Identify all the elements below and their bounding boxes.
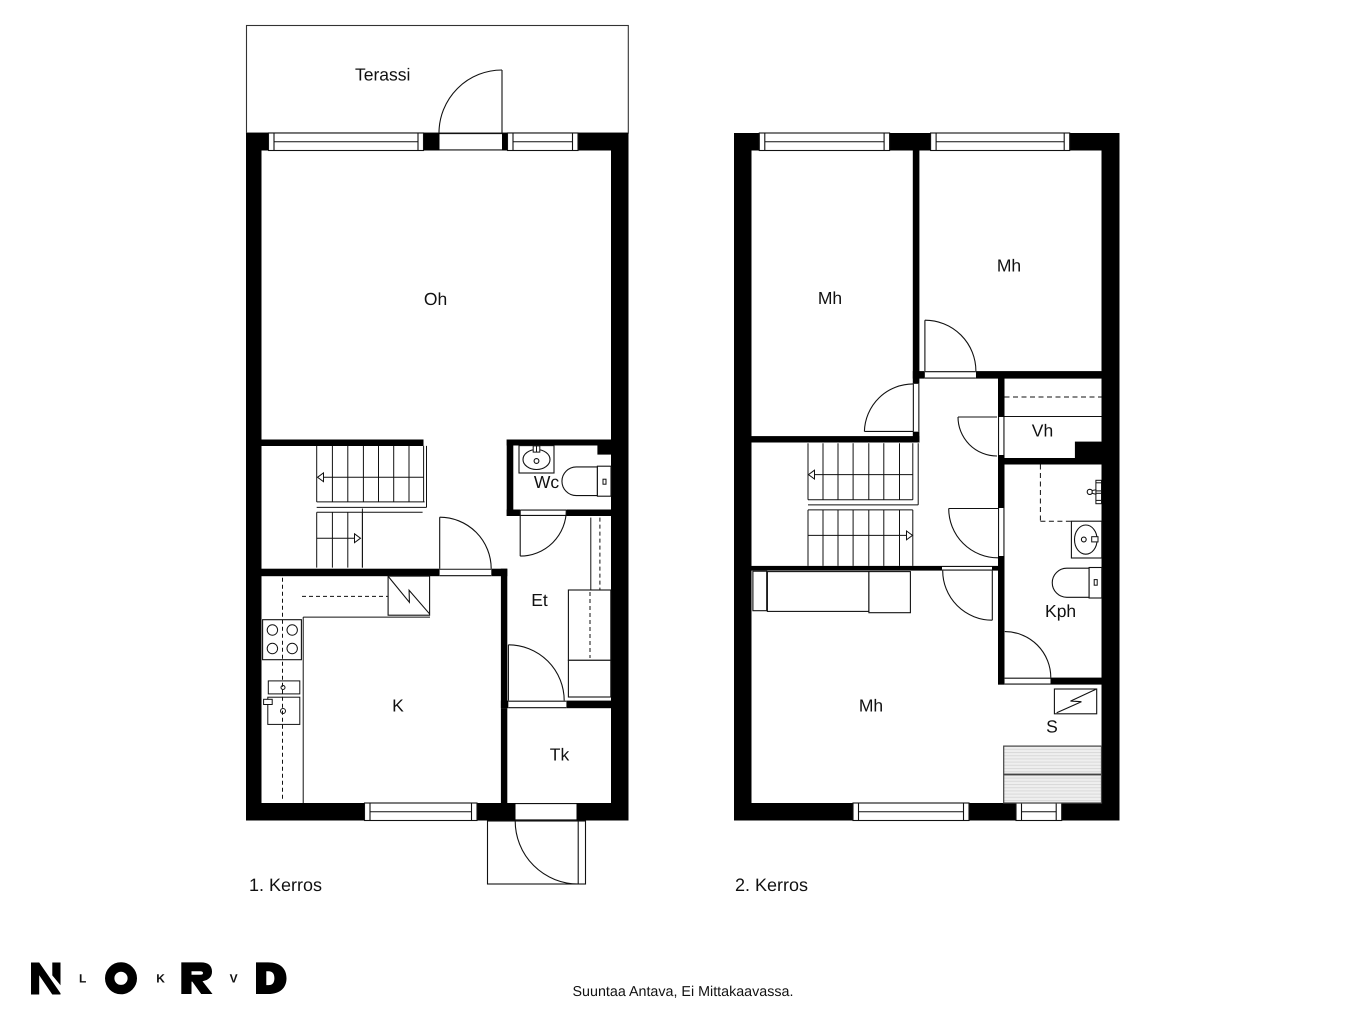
svg-text:Oh: Oh xyxy=(424,289,447,309)
svg-text:Mh: Mh xyxy=(997,256,1021,276)
svg-text:Terassi: Terassi xyxy=(355,65,410,85)
svg-text:K: K xyxy=(156,971,165,985)
svg-text:Mh: Mh xyxy=(859,696,883,716)
svg-text:Et: Et xyxy=(531,590,548,610)
svg-text:Mh: Mh xyxy=(818,288,842,308)
svg-text:L: L xyxy=(79,971,86,985)
svg-text:Vh: Vh xyxy=(1032,421,1053,441)
svg-text:Kph: Kph xyxy=(1045,601,1076,621)
svg-text:Wc: Wc xyxy=(534,472,560,492)
svg-text:K: K xyxy=(392,696,404,716)
svg-text:Tk: Tk xyxy=(550,745,570,765)
svg-text:1. Kerros: 1. Kerros xyxy=(249,875,322,895)
svg-text:Suuntaa Antava, Ei Mittakaavas: Suuntaa Antava, Ei Mittakaavassa. xyxy=(573,984,794,1000)
svg-text:2. Kerros: 2. Kerros xyxy=(735,875,808,895)
svg-text:V: V xyxy=(230,971,238,985)
svg-text:S: S xyxy=(1046,717,1058,737)
